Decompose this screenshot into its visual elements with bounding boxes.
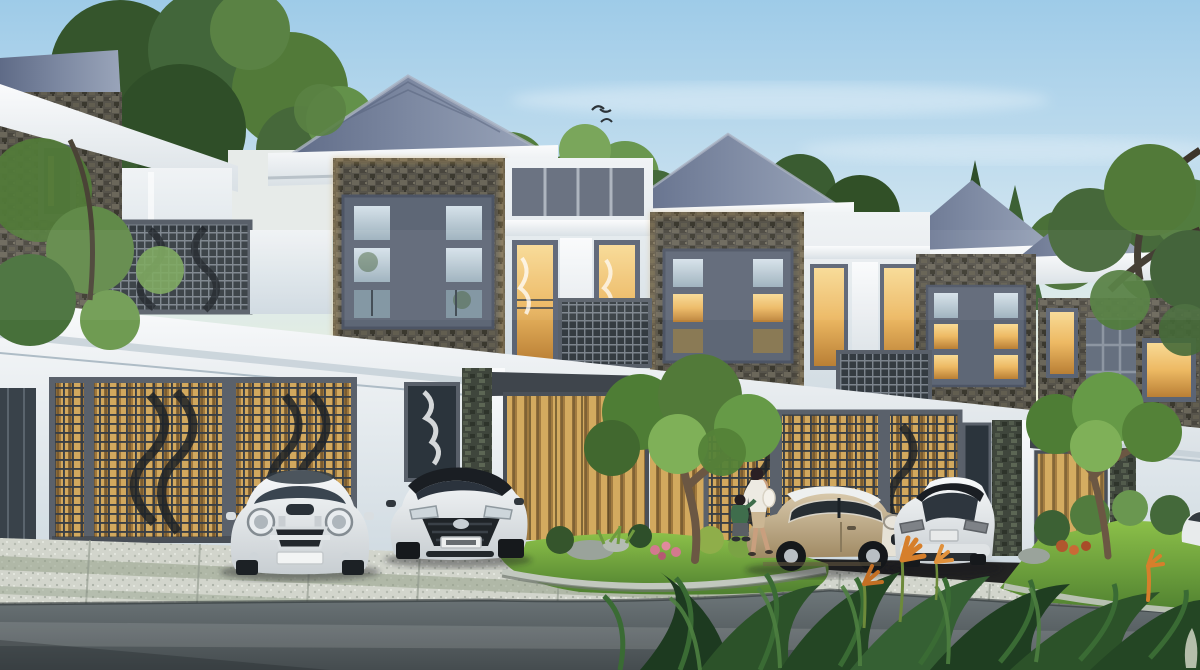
shrub [546, 526, 574, 554]
scene-canvas [0, 0, 1200, 670]
wheel [342, 560, 364, 575]
side-skirt [763, 562, 881, 566]
door-handle [847, 526, 856, 530]
wheel [970, 554, 986, 565]
glass-door [0, 388, 36, 560]
sunroof [266, 470, 334, 484]
brand-badge [453, 519, 469, 529]
wheel [498, 539, 524, 558]
shrub [1112, 490, 1148, 526]
side-mirror [364, 512, 374, 520]
hair [735, 495, 746, 506]
townhouse-render [0, 0, 1200, 670]
atmospheric-haze [0, 230, 1200, 320]
license-plate [930, 530, 958, 541]
side-mirror [514, 498, 524, 505]
hair [751, 468, 764, 481]
cloud [510, 84, 1050, 116]
stone-column [992, 420, 1022, 556]
side-mirror [386, 500, 396, 507]
handbag [763, 489, 775, 507]
wheel [236, 560, 258, 575]
narrow-art-window [406, 384, 458, 480]
lower-lip [426, 551, 494, 557]
skirt [751, 512, 766, 528]
wheel [396, 542, 420, 559]
rock [1018, 548, 1050, 564]
license-plate [277, 552, 323, 564]
side-mirror [226, 512, 236, 520]
rock [603, 538, 629, 552]
pants [732, 523, 749, 536]
hood-scoop [286, 504, 314, 515]
